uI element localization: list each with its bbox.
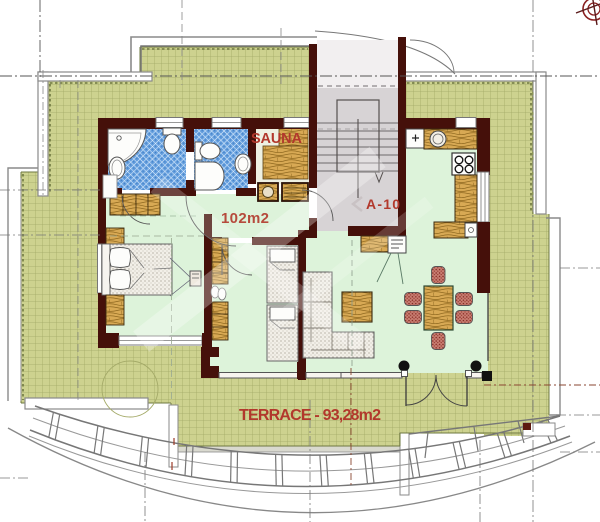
svg-text:TERRACE - 93,28m2: TERRACE - 93,28m2	[239, 407, 381, 424]
svg-text:SAUNA: SAUNA	[251, 131, 303, 147]
svg-text:102m2: 102m2	[221, 210, 269, 227]
svg-text:A-10: A-10	[366, 196, 400, 212]
